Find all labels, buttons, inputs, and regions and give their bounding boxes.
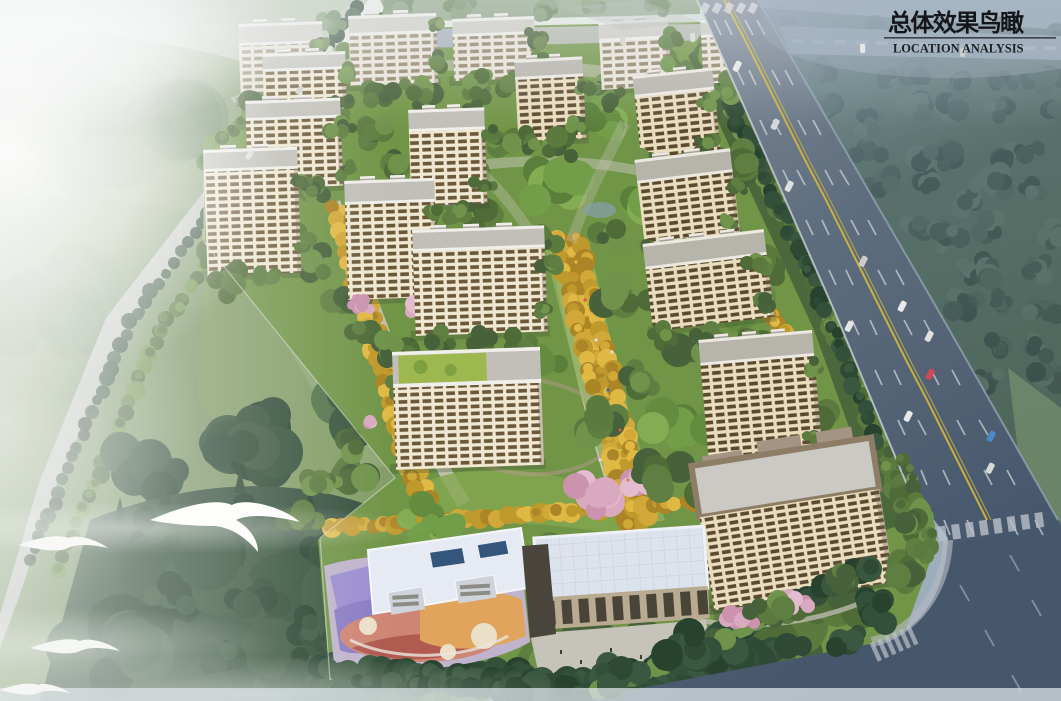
svg-text:总体效果鸟瞰: 总体效果鸟瞰 bbox=[888, 9, 1024, 37]
svg-text:LOCATION ANALYSIS: LOCATION ANALYSIS bbox=[893, 42, 1024, 56]
